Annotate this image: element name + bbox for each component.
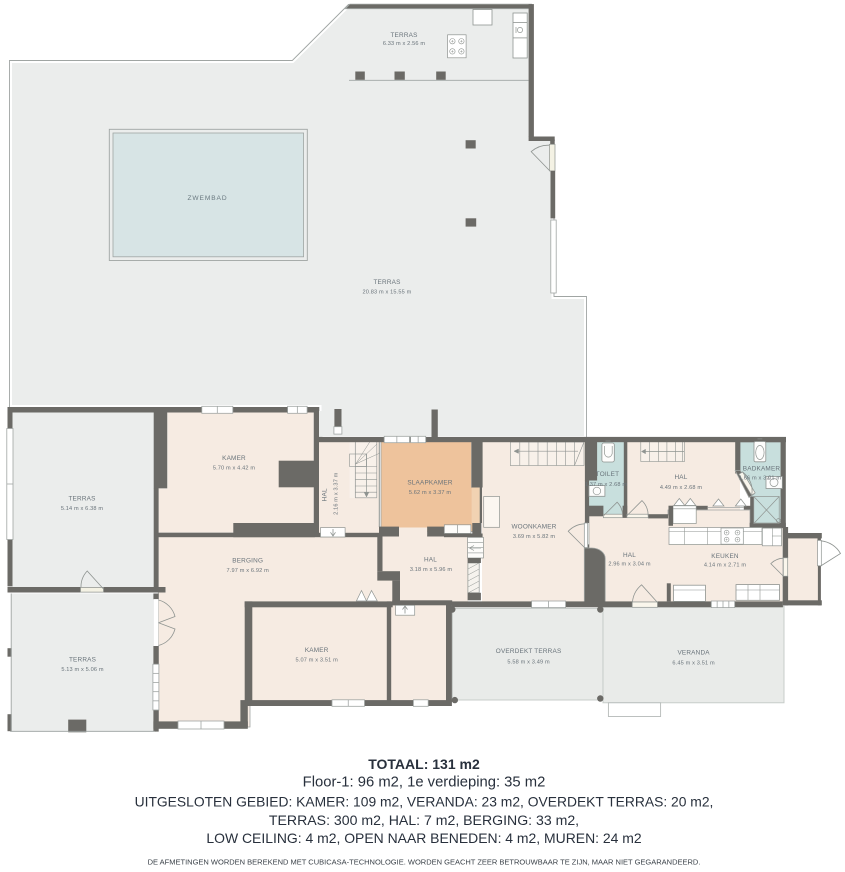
svg-text:2.96 m x 3.04 m: 2.96 m x 3.04 m	[608, 562, 651, 568]
svg-text:SLAAPKAMER: SLAAPKAMER	[407, 480, 453, 487]
svg-text:TOTAAL: 131 m2: TOTAAL: 131 m2	[368, 756, 480, 772]
svg-text:5.07 m x 3.51 m: 5.07 m x 3.51 m	[296, 657, 339, 663]
svg-text:4.14 m x 2.71 m: 4.14 m x 2.71 m	[704, 562, 747, 568]
svg-text:1.66 m x 3.01 m: 1.66 m x 3.01 m	[739, 476, 782, 482]
svg-text:6.45 m x 3.51 m: 6.45 m x 3.51 m	[672, 660, 715, 666]
svg-text:ZWEMBAD: ZWEMBAD	[188, 195, 228, 202]
svg-text:TERRAS: TERRAS	[373, 279, 400, 286]
svg-text:HAL: HAL	[623, 552, 636, 559]
svg-text:TERRAS: 300 m2, HAL: 7 m2, BER: TERRAS: 300 m2, HAL: 7 m2, BERGING: 33 m…	[269, 812, 579, 828]
svg-text:20.83 m x 15.55 m: 20.83 m x 15.55 m	[363, 290, 412, 296]
svg-text:BADKAMER: BADKAMER	[743, 466, 781, 473]
svg-text:3.18 m x 5.96 m: 3.18 m x 5.96 m	[410, 567, 453, 573]
svg-text:TOILET: TOILET	[596, 471, 619, 478]
svg-text:HAL: HAL	[424, 557, 437, 564]
svg-text:KAMER: KAMER	[305, 647, 329, 654]
svg-text:UITGESLOTEN GEBIED: KAMER: 109: UITGESLOTEN GEBIED: KAMER: 109 m2, VERAN…	[135, 793, 714, 809]
svg-text:LOW CEILING: 4 m2, OPEN NAAR B: LOW CEILING: 4 m2, OPEN NAAR BENEDEN: 4 …	[206, 830, 642, 846]
svg-text:4.49 m x 2.68 m: 4.49 m x 2.68 m	[660, 485, 703, 491]
svg-text:BERGING: BERGING	[232, 558, 263, 565]
svg-text:TERRAS: TERRAS	[390, 32, 417, 39]
svg-text:WOONKAMER: WOONKAMER	[511, 524, 556, 531]
svg-text:HAL: HAL	[322, 488, 329, 501]
svg-text:TERRAS: TERRAS	[68, 496, 95, 503]
svg-text:5.14 m x 6.38 m: 5.14 m x 6.38 m	[61, 506, 104, 512]
svg-text:DE AFMETINGEN WORDEN BEREKEND: DE AFMETINGEN WORDEN BEREKEND MET CUBICA…	[148, 858, 701, 867]
svg-text:HAL: HAL	[674, 474, 687, 481]
svg-text:VERANDA: VERANDA	[677, 650, 710, 657]
svg-text:KAMER: KAMER	[222, 455, 246, 462]
svg-text:5.62 m x 3.37 m: 5.62 m x 3.37 m	[409, 490, 452, 496]
svg-text:6.33 m x 2.56 m: 6.33 m x 2.56 m	[383, 41, 426, 47]
svg-text:Floor-1: 96 m2, 1e verdieping:: Floor-1: 96 m2, 1e verdieping: 35 m2	[303, 774, 546, 790]
svg-text:KEUKEN: KEUKEN	[711, 553, 739, 560]
svg-text:5.70 m x 4.42 m: 5.70 m x 4.42 m	[213, 466, 256, 472]
svg-text:5.58 m x 3.49 m: 5.58 m x 3.49 m	[507, 659, 550, 665]
svg-text:OVERDEKT TERRAS: OVERDEKT TERRAS	[496, 648, 562, 655]
svg-text:TERRAS: TERRAS	[69, 657, 96, 664]
svg-text:2.16 m x 3.37 m: 2.16 m x 3.37 m	[334, 472, 340, 515]
svg-text:7.97 m x 6.92 m: 7.97 m x 6.92 m	[227, 568, 270, 574]
svg-text:3.69 m x 5.82 m: 3.69 m x 5.82 m	[513, 534, 556, 540]
svg-text:1.37 m x 2.68 m: 1.37 m x 2.68 m	[585, 482, 628, 488]
svg-text:5.13 m x 5.06 m: 5.13 m x 5.06 m	[61, 667, 104, 673]
